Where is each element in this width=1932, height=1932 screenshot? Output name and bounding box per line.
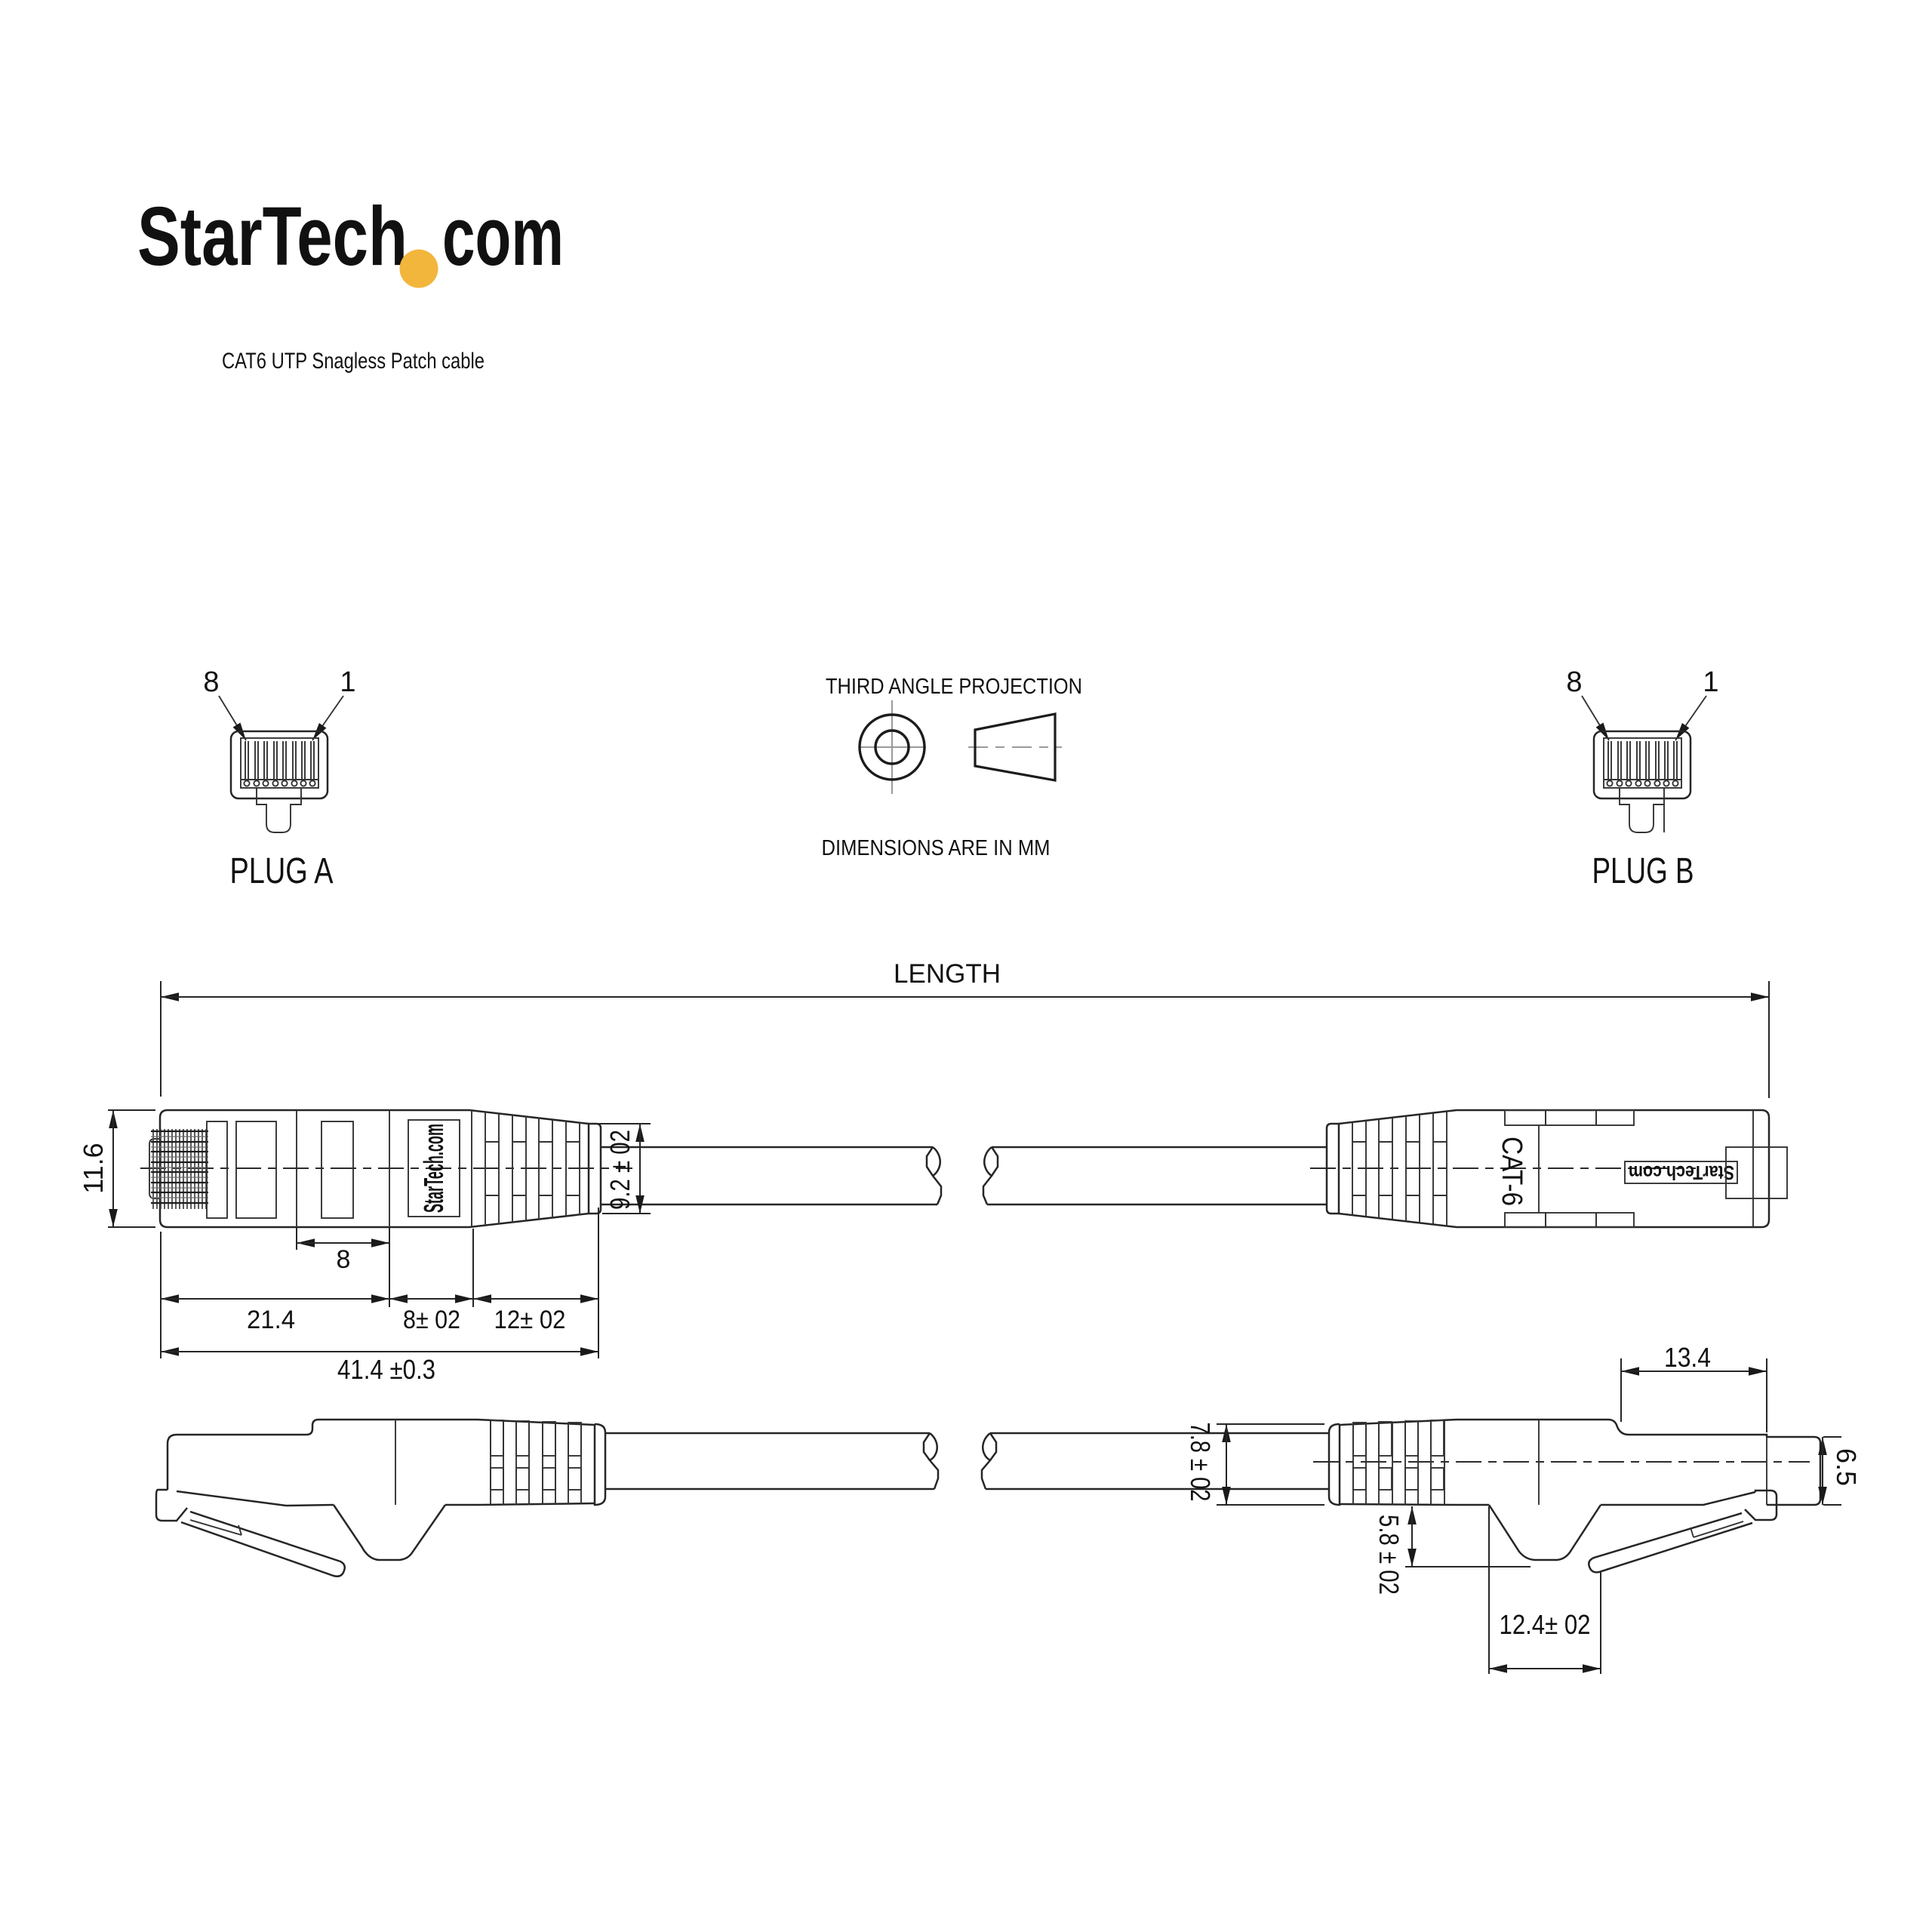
svg-text:21.4: 21.4 bbox=[247, 1306, 295, 1334]
svg-text:THIRD ANGLE PROJECTION: THIRD ANGLE PROJECTION bbox=[826, 675, 1082, 699]
svg-text:StarTech: StarTech bbox=[137, 190, 408, 283]
svg-text:5.8 ± 02: 5.8 ± 02 bbox=[1374, 1515, 1404, 1595]
svg-text:41.4 ±0.3: 41.4 ±0.3 bbox=[337, 1354, 435, 1385]
svg-text:13.4: 13.4 bbox=[1664, 1342, 1711, 1373]
svg-text:7.8 ± 02: 7.8 ± 02 bbox=[1185, 1423, 1216, 1502]
svg-text:CAT6 UTP Snagless Patch cable: CAT6 UTP Snagless Patch cable bbox=[222, 349, 485, 374]
svg-text:8: 8 bbox=[1566, 666, 1582, 698]
svg-text:11.6: 11.6 bbox=[78, 1143, 109, 1193]
svg-text:DIMENSIONS ARE IN MM: DIMENSIONS ARE IN MM bbox=[822, 836, 1051, 860]
svg-text:PLUG B: PLUG B bbox=[1592, 851, 1694, 891]
svg-text:CAT-6: CAT-6 bbox=[1496, 1137, 1527, 1206]
svg-text:StarTech.com: StarTech.com bbox=[418, 1124, 449, 1213]
svg-text:6.5: 6.5 bbox=[1831, 1448, 1862, 1486]
svg-text:LENGTH: LENGTH bbox=[894, 959, 1001, 989]
svg-text:1: 1 bbox=[340, 666, 355, 698]
svg-text:1: 1 bbox=[1703, 666, 1718, 698]
svg-text:PLUG A: PLUG A bbox=[230, 851, 334, 891]
svg-text:8± 02: 8± 02 bbox=[403, 1306, 460, 1334]
svg-text:8: 8 bbox=[337, 1245, 351, 1274]
svg-text:9.2 ± 02: 9.2 ± 02 bbox=[605, 1130, 635, 1210]
svg-text:12± 02: 12± 02 bbox=[494, 1306, 566, 1334]
svg-text:12.4± 02: 12.4± 02 bbox=[1500, 1609, 1591, 1640]
svg-text:StarTech.com: StarTech.com bbox=[1629, 1161, 1734, 1184]
svg-text:8: 8 bbox=[203, 666, 219, 698]
svg-text:com: com bbox=[442, 190, 564, 283]
